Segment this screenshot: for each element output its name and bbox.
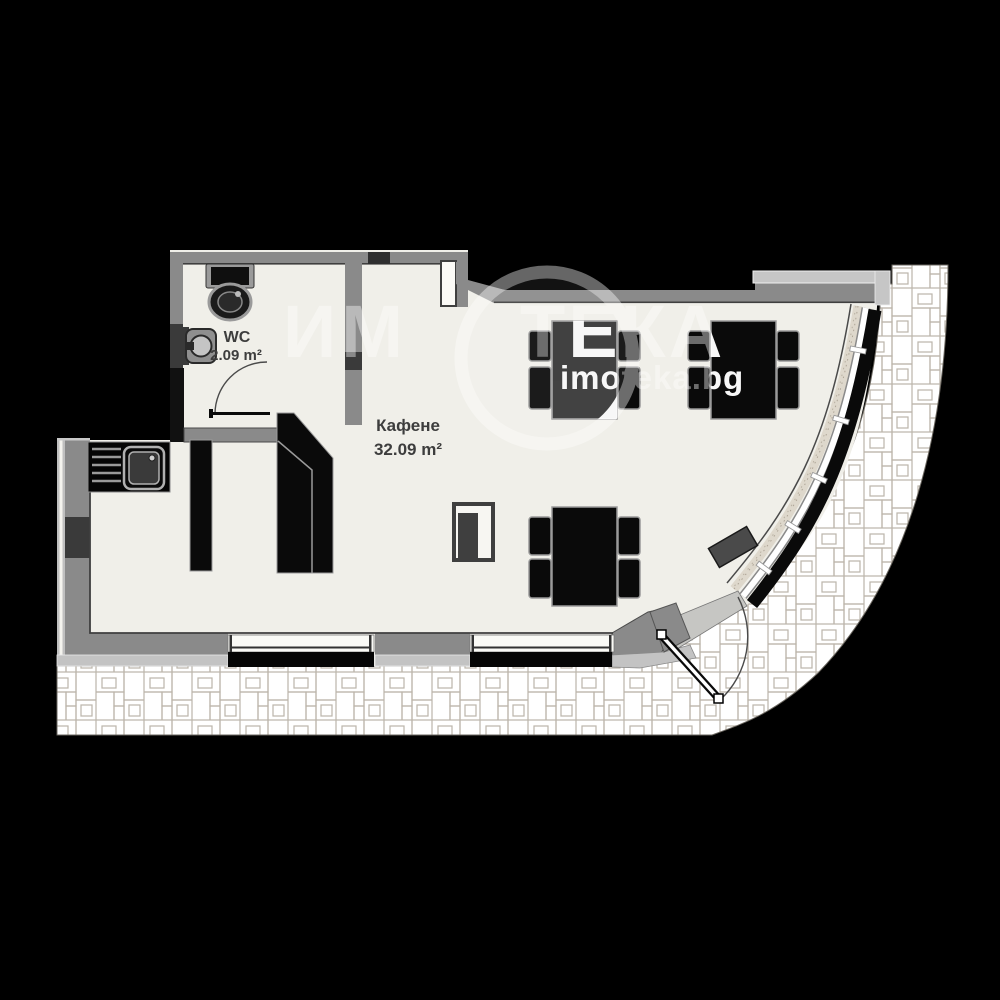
kitchen-sink-icon [124,447,164,489]
left-wall-outer-line1 [57,440,60,666]
window-1 [228,635,374,652]
window-1-tick-right [369,635,372,652]
floor-plan-image: ИМ ТЕКА imoteka.bg [0,0,1000,1000]
bottom-wall-middle [375,633,470,655]
cafe-area-label: 32.09 m² [374,440,442,459]
window-2 [470,635,614,652]
cafe-top-wall-thick [755,283,877,291]
window-1-tick-left [230,635,233,652]
top-wall [170,252,468,264]
toilet-icon [206,264,254,320]
wc-left-wall-lower [170,368,184,442]
bar-counter-1 [190,440,212,571]
entrance-door-pivot [657,630,666,639]
wc-door-stop [209,409,213,418]
entrance-door-tip [714,694,723,703]
left-wall-outer-line2 [63,440,66,666]
window-2-band [470,652,612,667]
top-wall-pier [368,252,390,264]
top-ledge-cap [875,271,890,305]
window-1-glass-line [232,647,370,649]
window-2-glass-line [474,647,610,649]
cafe-label: Кафене [376,416,440,435]
top-ledge [753,271,890,283]
wc-left-wall-pier [170,324,183,368]
wc-area-label: 2.09 m² [210,347,262,364]
sill-middle [375,655,470,666]
wc-label: WC [224,329,251,346]
sill-left [57,655,228,666]
service-station-icon [454,504,493,560]
window-2-tick-left [472,635,475,652]
left-wall-pier [65,517,90,558]
window-1-band [228,652,374,667]
wc-door-leaf [211,412,270,415]
floor-plan-canvas: ИМ ТЕКА imoteka.bg [0,0,1000,1000]
window-2-tick-right [609,635,612,652]
left-wall-top-line [57,438,90,441]
wall-niche [441,261,456,306]
bottom-wall-left [65,633,228,655]
